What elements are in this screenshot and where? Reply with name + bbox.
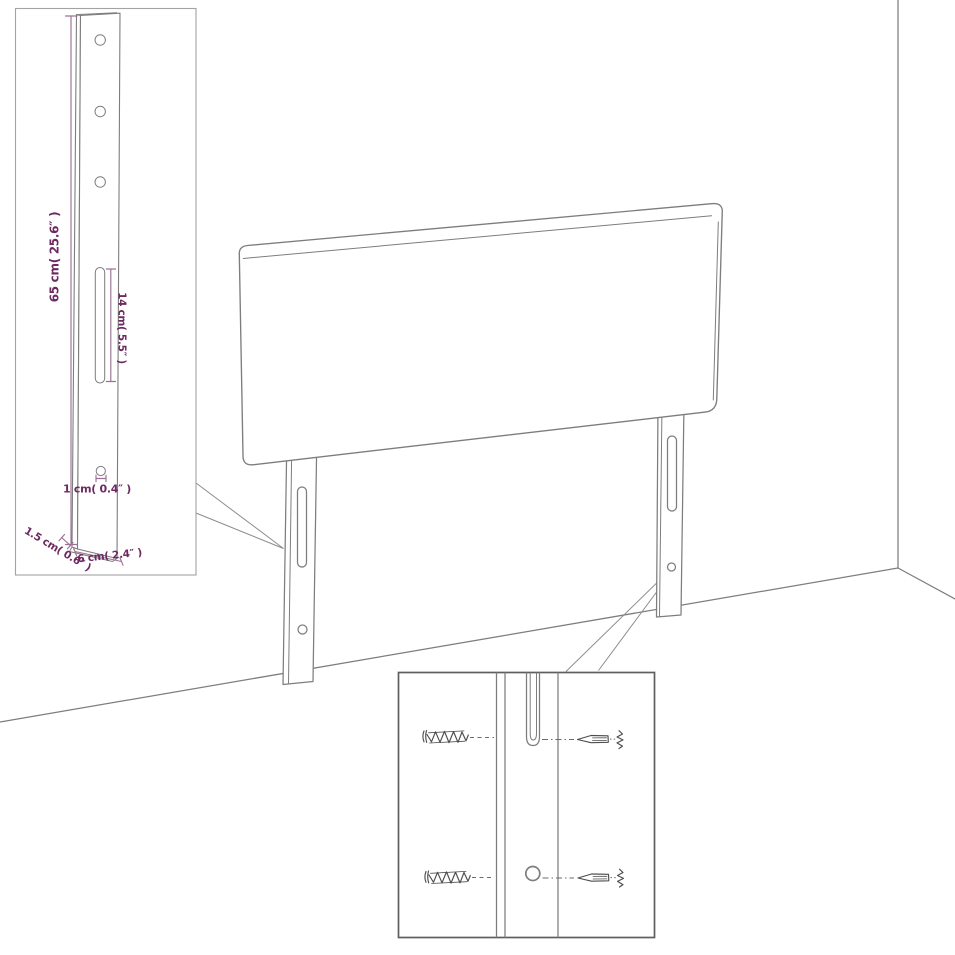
callout-line-inset-to-left-leg [196,483,284,549]
leg-height-label: 65 cm( 25.6″ ) [48,212,62,303]
callout-lines [196,483,673,672]
slot-length-label: 14 cm( 5.5″ ) [116,292,128,364]
hole-diameter-label: 1 cm( 0.4″ ) [63,483,131,496]
leg-front-view [70,13,121,562]
leg-dimension-inset: 65 cm( 25.6″ ) 14 cm( 5.5″ ) 1 cm( 0.4″ … [16,9,197,576]
headboard-dimension-diagram: 65 cm( 25.6″ ) 14 cm( 5.5″ ) 1 cm( 0.4″ … [0,0,955,955]
headboard [239,204,722,685]
wall-mounting-inset [399,673,655,938]
callout-line-inset-to-left-leg [196,513,284,549]
right-mounting-leg [657,403,685,617]
leg-front-face [78,13,121,558]
floor-line-right [898,568,955,599]
diagram-canvas: 65 cm( 25.6″ ) 14 cm( 5.5″ ) 1 cm( 0.4″ … [0,0,955,955]
headboard-panel [239,204,722,465]
panel-outline [239,204,722,465]
callout-line-hole-to-detail [566,571,670,672]
left-mounting-leg [283,428,317,685]
